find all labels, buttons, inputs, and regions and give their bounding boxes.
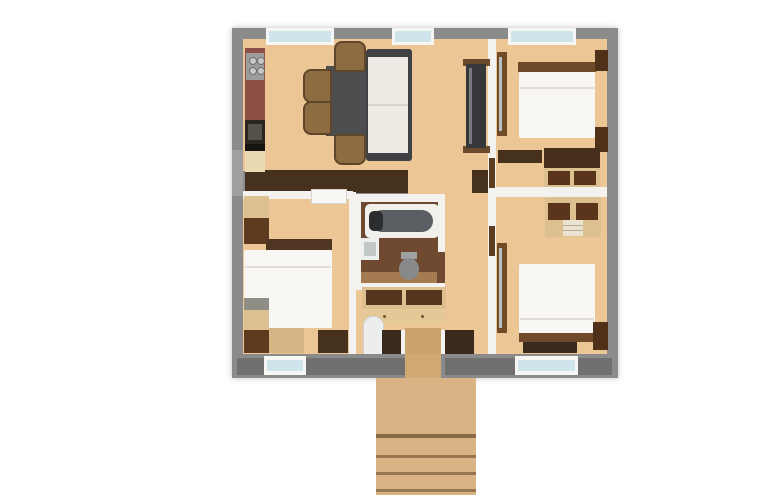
hall-shelf-left [366, 290, 402, 305]
wardrobe2-drawer-line-1 [563, 225, 583, 226]
wardrobe3-upper [244, 196, 269, 218]
desk-shelf-left [548, 171, 570, 185]
tv-screen-glint [469, 68, 472, 144]
hall-cabinet-knob-1 [383, 315, 386, 318]
desk-top-right [544, 148, 600, 168]
window-bottom-1-glass [267, 360, 303, 371]
window-top-1-glass [269, 31, 331, 42]
kitchen-counter-dark [245, 144, 265, 151]
deck-step-edge-3 [376, 472, 476, 475]
dining-chair-left-2 [303, 101, 332, 135]
interior-stairs [363, 316, 384, 359]
hall-shelf-right [406, 290, 442, 305]
bath-sink-basin [364, 242, 376, 256]
desk-shelf-right [574, 171, 596, 185]
door-bedroom-top-right [489, 158, 495, 188]
bed2-mattress [519, 264, 595, 334]
cabinet-top-right-band [498, 150, 542, 163]
bed3-headboard [266, 239, 332, 250]
wardrobe2-drawer-line-2 [563, 230, 583, 231]
cooktop-burner-2 [257, 57, 265, 65]
bathroom-door-opening [437, 252, 445, 283]
bed1-mattress [519, 72, 595, 138]
bed1-headboard [518, 62, 596, 72]
wardrobe4-mid [244, 310, 269, 330]
bottom-wall-cladding-4 [578, 358, 612, 375]
kitchen-sink-basin [248, 124, 262, 140]
deck-step-edge-4 [376, 489, 476, 492]
bottom-wall-cladding-2 [306, 358, 406, 375]
wardrobe2-interior-left [548, 203, 570, 220]
bathtub-faucet [369, 211, 383, 231]
door-bedroom-left [311, 189, 347, 204]
left-wall-patch [232, 150, 243, 196]
bed2-nightstand [593, 322, 608, 350]
cooktop-burner-3 [249, 67, 257, 75]
apartment-floor-plan [0, 0, 781, 502]
bottom-wall-cladding-1 [237, 358, 264, 375]
toilet [399, 258, 419, 280]
wall-right-bedrooms-divider [496, 187, 607, 197]
window-top-2-glass [395, 31, 431, 42]
dining-chair-left-1 [303, 69, 332, 103]
wardrobe4-low [244, 330, 269, 353]
wall-living-east [488, 39, 496, 360]
kitchen-cabinet [245, 151, 265, 172]
dining-table [326, 66, 368, 136]
wardrobe-mirror-top-right [499, 57, 502, 131]
bed2-footboard [519, 333, 595, 342]
window-bottom-2-glass [518, 360, 575, 371]
bed3-pillow-seam [245, 266, 331, 268]
dining-chair-bottom [334, 134, 366, 165]
deck-step-edge-2 [376, 455, 476, 458]
hall-cabinet-knob-2 [421, 315, 424, 318]
wardrobe2-interior-right [576, 203, 598, 220]
bed1-pillow-seam [520, 87, 594, 89]
entry-door-gap [405, 354, 441, 378]
wardrobe2-drawers [563, 220, 583, 236]
dining-chair-top [334, 41, 366, 72]
bed2-bench [523, 342, 577, 353]
deck-step-edge-1 [376, 434, 476, 438]
cooktop-burner-1 [249, 57, 257, 65]
wardrobe4-top [244, 298, 269, 310]
bed3-bench-dark [318, 330, 348, 353]
cooktop-burner-4 [257, 67, 265, 75]
bottom-wall-cladding-3 [445, 358, 515, 375]
window-top-3-glass [511, 31, 573, 42]
bed3-bench-light [266, 328, 304, 353]
bed1-nightstand-top [595, 50, 608, 71]
door-bedroom-bottom-right [489, 226, 495, 256]
wardrobe-mirror-bottom-right [499, 248, 502, 328]
bed2-pillow-seam [520, 318, 594, 320]
sofa-seam [368, 104, 408, 106]
